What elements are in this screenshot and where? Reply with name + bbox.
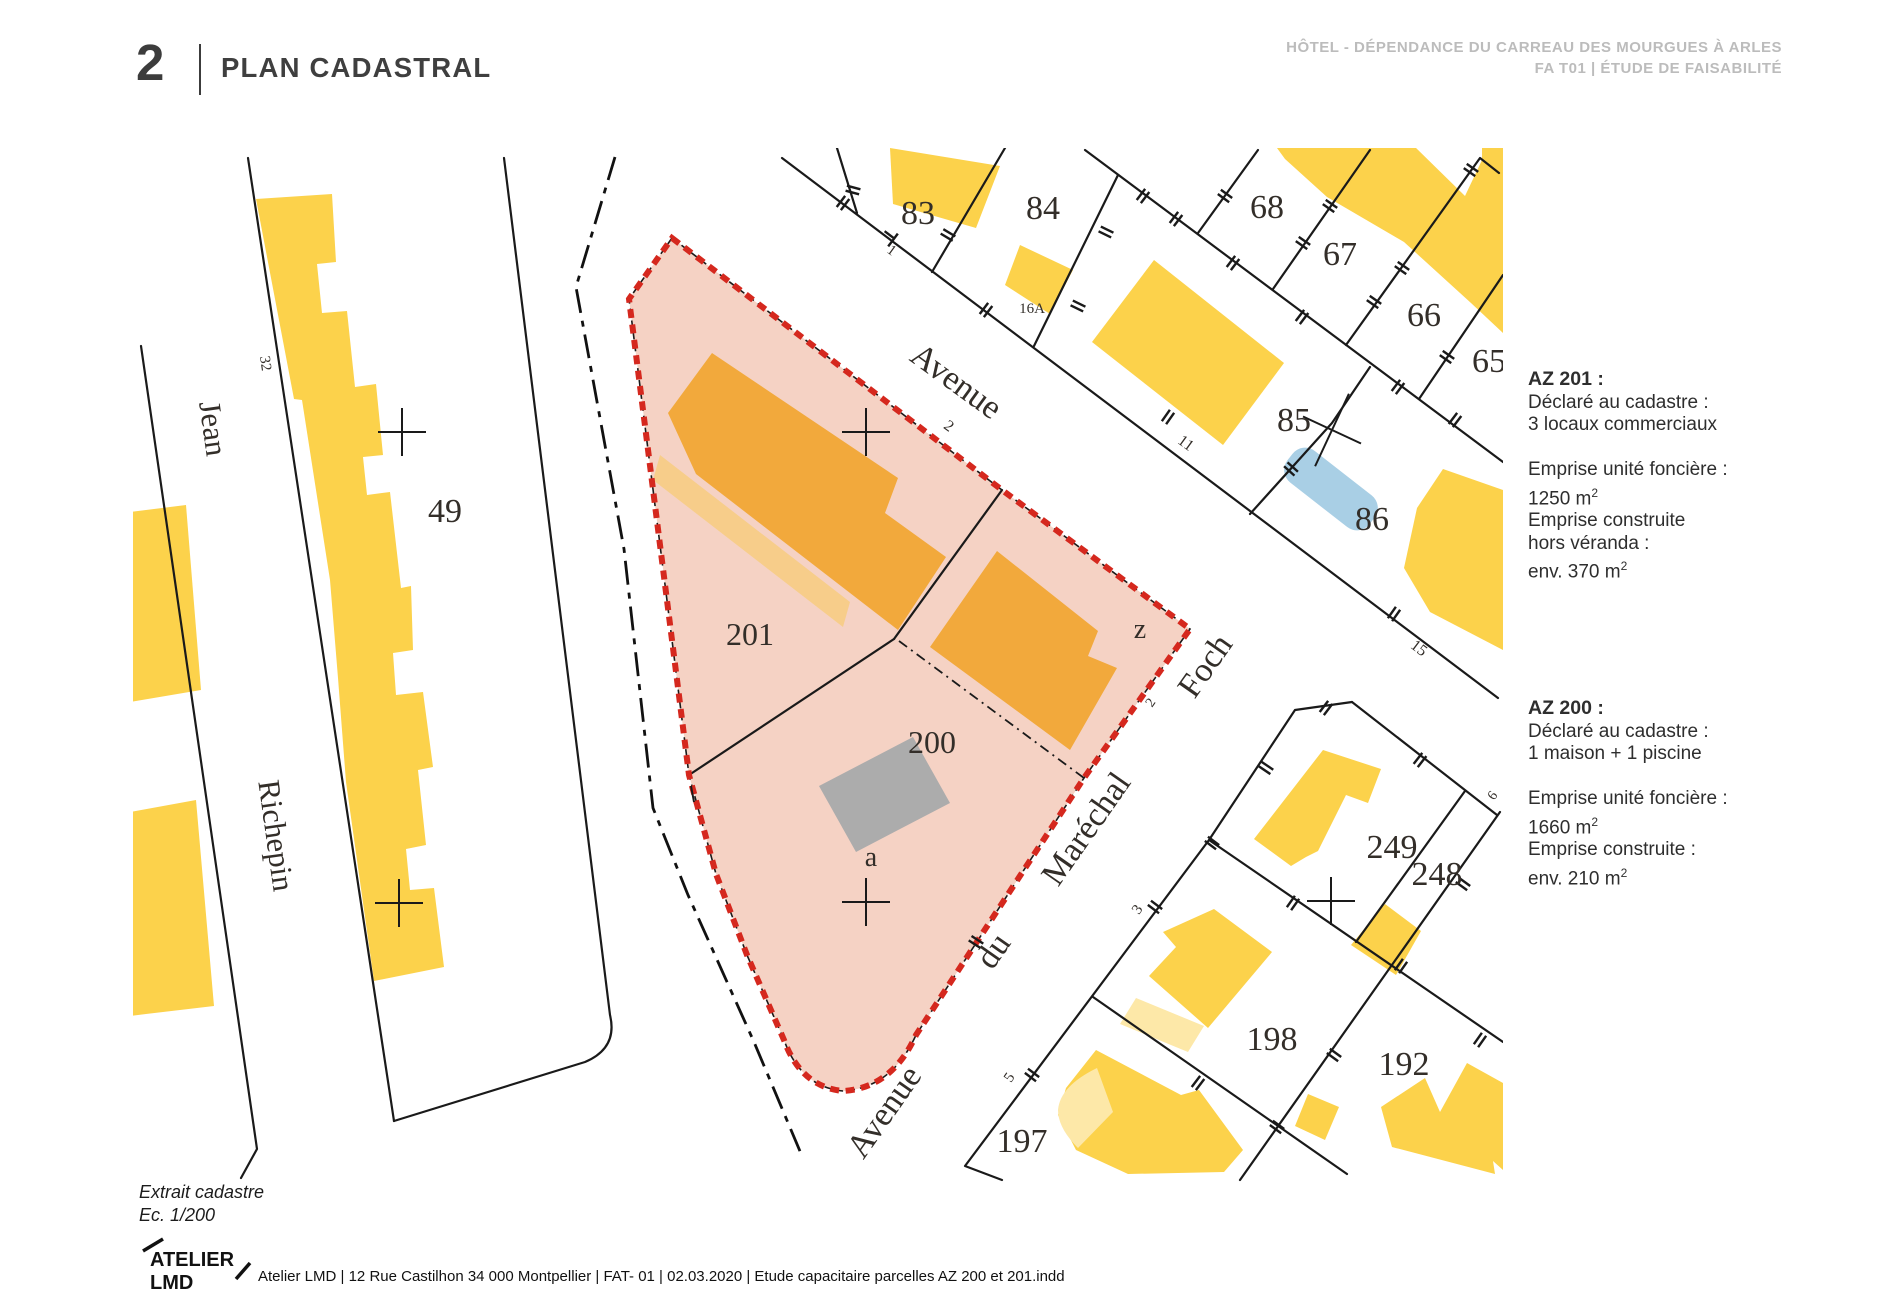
svg-text:a: a bbox=[865, 842, 878, 873]
svg-text:249: 249 bbox=[1367, 829, 1418, 866]
svg-text:11: 11 bbox=[1174, 432, 1196, 455]
svg-text:3: 3 bbox=[1129, 902, 1146, 917]
svg-text:16A: 16A bbox=[1019, 301, 1045, 317]
svg-text:2: 2 bbox=[940, 417, 956, 435]
svg-text:Avenue: Avenue bbox=[904, 336, 1009, 427]
svg-text:Richepin: Richepin bbox=[251, 778, 301, 894]
svg-text:65: 65 bbox=[1472, 343, 1506, 380]
svg-text:5: 5 bbox=[1001, 1070, 1018, 1085]
svg-text:248: 248 bbox=[1412, 856, 1463, 893]
svg-text:1: 1 bbox=[884, 242, 899, 259]
svg-text:68: 68 bbox=[1250, 189, 1284, 226]
svg-text:66: 66 bbox=[1407, 297, 1441, 334]
svg-text:201: 201 bbox=[726, 616, 774, 652]
svg-text:84: 84 bbox=[1026, 190, 1060, 227]
svg-text:85: 85 bbox=[1277, 402, 1311, 439]
svg-text:83: 83 bbox=[901, 195, 935, 232]
svg-text:198: 198 bbox=[1247, 1021, 1298, 1058]
svg-text:192: 192 bbox=[1379, 1046, 1430, 1083]
svg-text:15: 15 bbox=[1407, 637, 1430, 660]
svg-text:49: 49 bbox=[428, 493, 462, 530]
svg-text:32: 32 bbox=[256, 355, 274, 372]
svg-text:6: 6 bbox=[1485, 789, 1501, 803]
svg-text:2: 2 bbox=[1143, 696, 1159, 710]
svg-text:67: 67 bbox=[1323, 236, 1357, 273]
svg-text:86: 86 bbox=[1355, 501, 1389, 538]
svg-text:z: z bbox=[1134, 614, 1146, 645]
svg-text:197: 197 bbox=[997, 1123, 1048, 1160]
svg-text:Jean: Jean bbox=[192, 399, 234, 459]
svg-text:200: 200 bbox=[908, 724, 956, 760]
